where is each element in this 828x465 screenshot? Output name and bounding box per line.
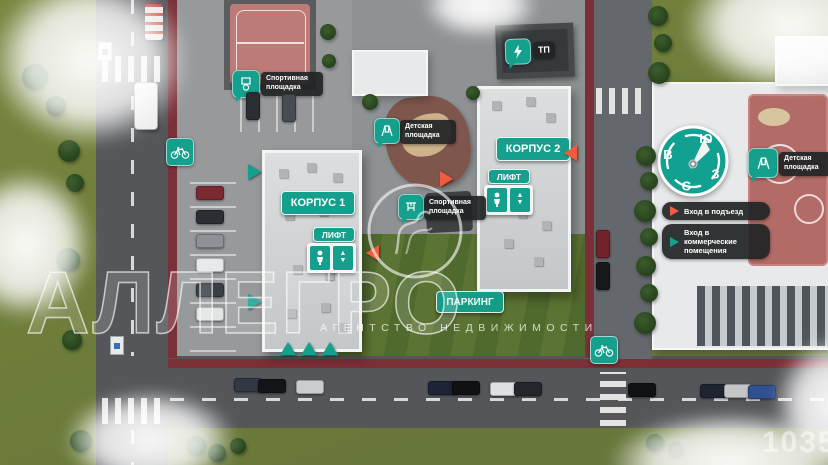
crosswalk bbox=[596, 88, 646, 114]
rooftop-unit bbox=[504, 239, 513, 248]
rooftop-unit bbox=[526, 97, 535, 106]
orange-arrow-icon bbox=[670, 206, 679, 216]
play-equipment bbox=[758, 108, 790, 126]
building-window-grid bbox=[697, 286, 828, 346]
commercial-entrance-arrow bbox=[248, 164, 261, 180]
tree bbox=[62, 330, 82, 350]
lift-1-marker: ▲▼ bbox=[307, 243, 356, 273]
tree bbox=[634, 200, 656, 222]
court-lines bbox=[236, 42, 304, 44]
ladder-truck bbox=[145, 4, 163, 40]
rooftop-unit bbox=[293, 265, 302, 274]
legend-label: Вход в подъезд bbox=[684, 207, 743, 216]
tree bbox=[22, 64, 48, 90]
photo-number: 1035 bbox=[762, 426, 828, 460]
stall-line bbox=[190, 206, 236, 208]
tree bbox=[58, 140, 80, 162]
rooftop-unit bbox=[287, 309, 296, 318]
car bbox=[452, 381, 480, 395]
car bbox=[196, 234, 224, 248]
elevator-person-icon bbox=[487, 188, 507, 212]
car bbox=[196, 186, 224, 200]
compass: Ю З С В bbox=[656, 124, 730, 198]
rooftop-unit bbox=[492, 101, 501, 110]
tree bbox=[636, 146, 656, 166]
building-2-marker[interactable]: КОРПУС 2 bbox=[496, 137, 570, 161]
commercial-entrance-arrow bbox=[322, 342, 338, 355]
tree bbox=[320, 24, 336, 40]
tree bbox=[668, 442, 684, 458]
car bbox=[196, 210, 224, 224]
bicycle-icon bbox=[166, 138, 194, 166]
building-north-roof bbox=[352, 50, 428, 96]
rooftop-unit bbox=[321, 303, 330, 312]
car bbox=[196, 307, 224, 321]
car bbox=[596, 230, 610, 258]
tree bbox=[640, 172, 658, 190]
rooftop-unit bbox=[542, 221, 551, 230]
sport-ground-label: Спортивная площадка bbox=[261, 72, 323, 96]
parking-marker[interactable]: ПАРКИНГ bbox=[436, 291, 504, 313]
court-lines bbox=[236, 10, 306, 78]
rooftop-unit bbox=[534, 257, 543, 266]
lift-2-marker: ▲▼ bbox=[484, 185, 533, 215]
stall-line bbox=[190, 278, 236, 280]
tree bbox=[640, 284, 658, 302]
stall-line bbox=[190, 254, 236, 256]
tree bbox=[66, 174, 84, 192]
tree bbox=[646, 434, 664, 452]
car bbox=[282, 94, 296, 122]
bike-lane-right bbox=[585, 0, 594, 358]
stall-line bbox=[276, 90, 278, 132]
tree bbox=[230, 438, 246, 454]
play-equipment bbox=[794, 194, 824, 224]
commercial-entrance-arrow bbox=[280, 342, 296, 355]
site-plan-render: ТП КОРПУС 1 ЛИФТ ▲▼ bbox=[0, 0, 828, 465]
tree bbox=[634, 312, 656, 334]
tree bbox=[640, 228, 658, 246]
bicycle-icon bbox=[590, 336, 618, 364]
tree bbox=[186, 436, 206, 456]
tree bbox=[636, 256, 656, 276]
car bbox=[628, 383, 656, 397]
car bbox=[596, 262, 610, 290]
tp-label: ТП bbox=[533, 41, 556, 59]
rooftop-unit bbox=[333, 173, 342, 182]
legend-label: Вход в коммерческие помещения bbox=[684, 228, 762, 255]
rooftop-unit bbox=[337, 323, 346, 332]
tree bbox=[208, 444, 226, 462]
building-1-marker[interactable]: КОРПУС 1 bbox=[281, 191, 355, 215]
teal-arrow-icon bbox=[670, 237, 679, 247]
kids-ground-right-icon bbox=[748, 148, 778, 178]
car bbox=[196, 258, 224, 272]
bike-lane-left bbox=[168, 0, 177, 358]
tree bbox=[648, 62, 670, 84]
kids-ground-icon bbox=[374, 118, 400, 144]
elevator-arrows-icon: ▲▼ bbox=[333, 246, 353, 270]
commercial-entrance-arrow bbox=[301, 342, 317, 355]
car bbox=[196, 283, 224, 297]
tree bbox=[362, 94, 378, 110]
car bbox=[246, 92, 260, 120]
transformer-substation: ТП bbox=[495, 23, 575, 80]
compass-north-letter: С bbox=[682, 179, 692, 194]
tree bbox=[466, 86, 480, 100]
watermark-emblem bbox=[366, 182, 464, 280]
compass-east-letter: В bbox=[663, 147, 672, 162]
tree bbox=[70, 430, 92, 452]
car bbox=[296, 380, 324, 394]
lift-2-tag: ЛИФТ bbox=[488, 169, 530, 184]
tree bbox=[648, 6, 668, 26]
rooftop-unit bbox=[546, 113, 555, 122]
kids-ground-label: Детская площадка bbox=[400, 120, 456, 144]
stall-line bbox=[190, 230, 236, 232]
elevator-person-icon bbox=[310, 246, 330, 270]
compass-west-letter: З bbox=[711, 167, 719, 182]
stall-line bbox=[190, 182, 236, 184]
legend: Вход в подъезд Вход в коммерческие помещ… bbox=[662, 202, 770, 259]
crosswalk bbox=[600, 372, 626, 426]
legend-entrance-porch[interactable]: Вход в подъезд bbox=[662, 202, 770, 220]
car bbox=[748, 385, 776, 399]
electricity-icon bbox=[505, 38, 532, 65]
road-centerline bbox=[131, 0, 134, 356]
building-northeast-roof bbox=[775, 36, 828, 86]
legend-entrance-commercial[interactable]: Вход в коммерческие помещения bbox=[662, 224, 770, 259]
stall-line bbox=[190, 302, 236, 304]
building-2-roof: КОРПУС 2 ЛИФТ ▲▼ bbox=[477, 86, 571, 292]
tree bbox=[56, 248, 80, 272]
kids-ground-right-label: Детская площадка bbox=[779, 152, 828, 176]
lift-1-tag: ЛИФТ bbox=[313, 227, 355, 242]
car bbox=[514, 382, 542, 396]
road-centerline bbox=[131, 430, 134, 465]
tree bbox=[46, 96, 66, 116]
elevator-arrows-icon: ▲▼ bbox=[510, 188, 530, 212]
road-sign bbox=[98, 42, 112, 61]
tree bbox=[322, 54, 336, 68]
stall-line bbox=[312, 90, 314, 132]
road-centerline bbox=[170, 398, 828, 401]
bike-lane-bottom bbox=[168, 359, 828, 368]
stall-line bbox=[190, 350, 236, 352]
road-sign bbox=[110, 336, 124, 355]
stall-line bbox=[190, 326, 236, 328]
building-1-roof: КОРПУС 1 ЛИФТ ▲▼ bbox=[262, 150, 362, 352]
tree bbox=[654, 34, 672, 52]
commercial-entrance-arrow bbox=[248, 294, 261, 310]
rooftop-unit bbox=[279, 169, 288, 178]
truck bbox=[134, 82, 158, 130]
rooftop-unit bbox=[307, 163, 316, 172]
crosswalk bbox=[102, 398, 164, 424]
porch-entrance-arrow bbox=[564, 145, 577, 161]
car bbox=[258, 379, 286, 393]
